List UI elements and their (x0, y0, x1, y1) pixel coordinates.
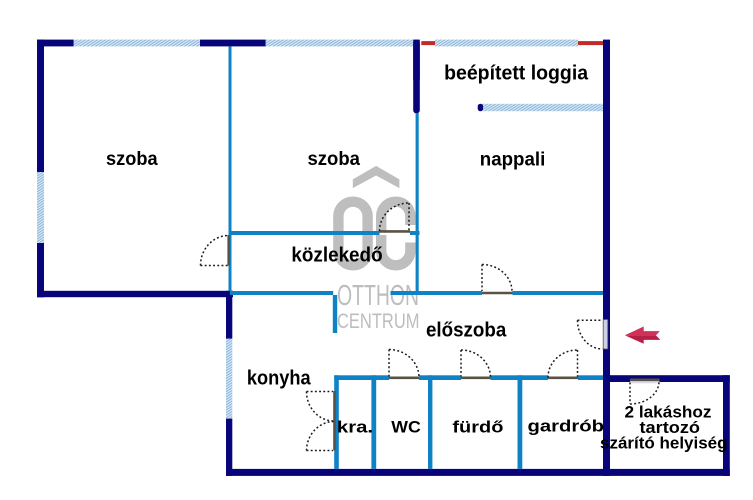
svg-text:nappali: nappali (480, 149, 546, 171)
svg-text:szárító helyiség: szárító helyiség (600, 434, 728, 453)
svg-text:előszoba: előszoba (426, 319, 507, 341)
svg-text:kra.: kra. (337, 418, 373, 437)
svg-text:CENTRUM: CENTRUM (337, 310, 420, 333)
svg-text:közlekedő: közlekedő (291, 245, 382, 267)
svg-text:konyha: konyha (247, 368, 312, 390)
svg-text:gardrób: gardrób (528, 417, 605, 436)
svg-text:fürdő: fürdő (452, 418, 503, 437)
svg-text:beépített loggia: beépített loggia (444, 62, 589, 85)
svg-text:WC: WC (391, 418, 421, 437)
svg-text:OTTHON: OTTHON (337, 280, 419, 312)
svg-text:szoba: szoba (308, 149, 361, 170)
svg-text:szoba: szoba (106, 149, 158, 170)
